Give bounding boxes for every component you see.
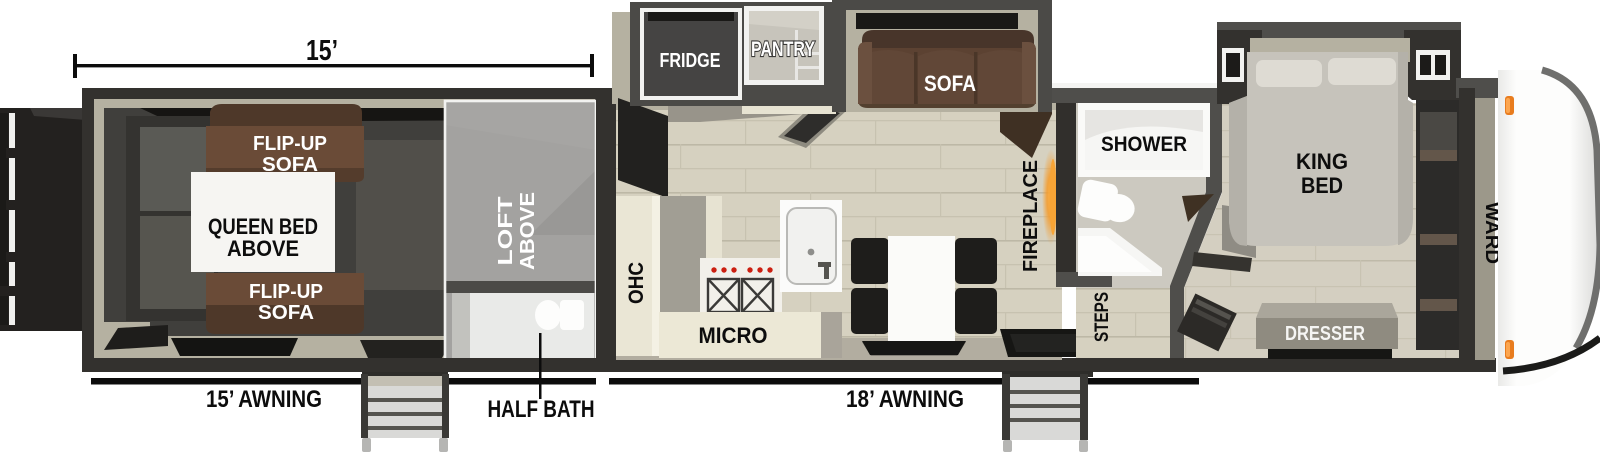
svg-text:OHC: OHC [625,262,648,304]
svg-text:FLIP-UP: FLIP-UP [249,280,323,303]
svg-text:HALF BATH: HALF BATH [488,396,595,423]
svg-text:SOFA: SOFA [924,71,976,96]
svg-text:PANTRY: PANTRY [751,38,815,61]
svg-text:DRESSER: DRESSER [1285,323,1365,345]
svg-text:LOFT: LOFT [494,196,517,266]
svg-text:FRIDGE: FRIDGE [660,49,721,72]
svg-text:18’ AWNING: 18’ AWNING [846,386,964,413]
svg-text:ABOVE: ABOVE [227,236,299,261]
svg-text:ABOVE: ABOVE [516,192,539,270]
svg-text:15’: 15’ [306,35,338,67]
svg-text:BED: BED [1301,173,1343,198]
svg-text:KING: KING [1296,149,1348,174]
svg-text:SOFA: SOFA [258,301,314,324]
svg-text:15’ AWNING: 15’ AWNING [206,386,322,413]
svg-text:STEPS: STEPS [1091,292,1113,342]
svg-text:MICRO: MICRO [699,323,768,348]
svg-text:FLIP-UP: FLIP-UP [253,132,327,155]
svg-text:SHOWER: SHOWER [1101,133,1187,156]
svg-text:FIREPLACE: FIREPLACE [1020,160,1042,272]
